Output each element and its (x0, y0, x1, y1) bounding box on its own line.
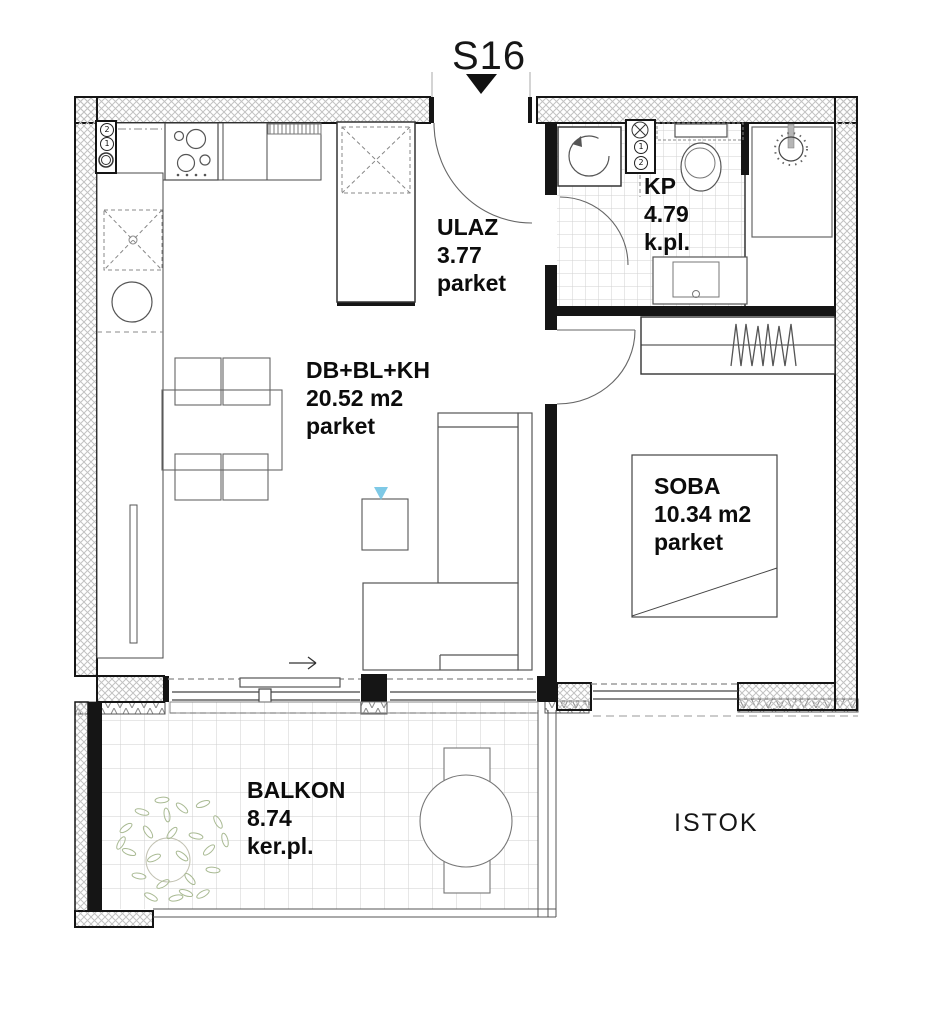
room-area: 3.77 (437, 241, 506, 269)
washing-machine-icon (558, 127, 621, 186)
boiler-niche (752, 124, 832, 237)
orientation-label: ISTOK (674, 809, 759, 838)
kitchen-shaft-number-1: 1 (100, 137, 114, 151)
room-area: 10.34 m2 (654, 500, 751, 528)
wardrobe-icon (641, 317, 835, 374)
kitchen-shaft-number-2: 2 (100, 123, 114, 137)
room-label-kp: KP 4.79 k.pl. (644, 172, 690, 256)
entry-door-arc (432, 72, 532, 223)
room-name: BALKON (247, 776, 345, 804)
room-floor: ker.pl. (247, 832, 345, 860)
blue-marker-triangle (374, 487, 388, 500)
bath-shaft-number-2: 2 (634, 156, 648, 170)
coffee-table-icon (362, 487, 408, 550)
radiator-icon (130, 505, 137, 643)
room-name: DB+BL+KH (306, 356, 430, 384)
bath-shaft-number-1: 1 (634, 140, 648, 154)
room-label-ulaz: ULAZ 3.77 parket (437, 213, 506, 297)
soba-door-arc (557, 330, 635, 404)
room-area: 8.74 (247, 804, 345, 832)
room-name: ULAZ (437, 213, 506, 241)
room-area: 20.52 m2 (306, 384, 430, 412)
hall-closet (337, 122, 415, 302)
room-name: SOBA (654, 472, 751, 500)
room-label-soba: SOBA 10.34 m2 parket (654, 472, 751, 556)
soba-window (591, 684, 738, 699)
floor-plan-drawing (0, 0, 931, 1024)
room-floor: parket (437, 269, 506, 297)
room-floor: parket (306, 412, 430, 440)
room-floor: k.pl. (644, 228, 690, 256)
dining-set (162, 358, 282, 500)
slide-direction-arrow (289, 657, 316, 669)
washbasin-icon (653, 257, 747, 304)
floor-plan: S16 ULAZ 3.77 parket KP 4.79 k.pl. DB+BL… (0, 0, 931, 1024)
room-area: 4.79 (644, 200, 690, 228)
room-label-balkon: BALKON 8.74 ker.pl. (247, 776, 345, 860)
room-label-living: DB+BL+KH 20.52 m2 parket (306, 356, 430, 440)
room-floor: parket (654, 528, 751, 556)
room-name: KP (644, 172, 690, 200)
unit-title: S16 (452, 34, 526, 79)
